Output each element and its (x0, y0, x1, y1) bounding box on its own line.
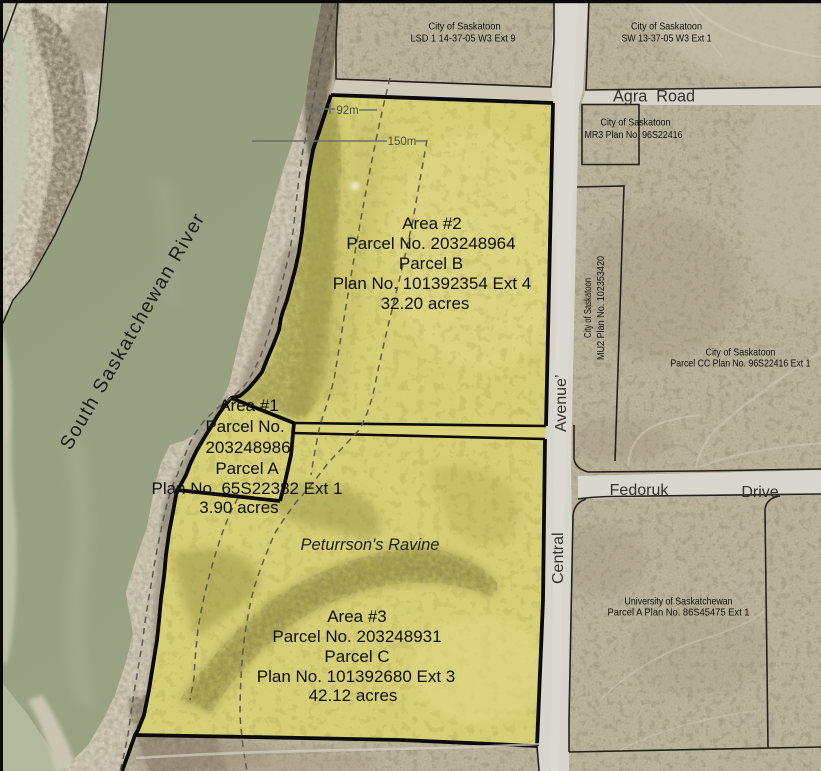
svg-text:Area #3: Area #3 (327, 607, 387, 626)
svg-text:Parcel A Plan No. 86S45475 Ext: Parcel A Plan No. 86S45475 Ext 1 (608, 607, 750, 619)
svg-text:Parcel A: Parcel A (215, 459, 279, 478)
svg-text:Area #2: Area #2 (402, 214, 462, 233)
svg-text:Parcel No. 203248964: Parcel No. 203248964 (346, 234, 515, 253)
svg-text:92m: 92m (336, 105, 358, 117)
svg-text:3.90 acres: 3.90 acres (199, 498, 278, 517)
svg-text:Fedoruk: Fedoruk (610, 482, 670, 499)
svg-text:Avenue’: Avenue’ (553, 374, 570, 432)
svg-text:Parcel No. 203248931: Parcel No. 203248931 (272, 627, 441, 646)
svg-text:City of Saskatoon: City of Saskatoon (582, 278, 594, 338)
svg-text:Parcel No.: Parcel No. (205, 417, 284, 436)
svg-text:Central: Central (550, 532, 567, 584)
svg-text:203248986: 203248986 (205, 438, 290, 457)
svg-text:LSD 1 14-37-05 W3 Ext 9: LSD 1 14-37-05 W3 Ext 9 (411, 33, 516, 45)
svg-text:Plan No. 101392680 Ext 3: Plan No. 101392680 Ext 3 (257, 667, 455, 686)
svg-text:Parcel CC Plan No. 96S22416 Ex: Parcel CC Plan No. 96S22416 Ext 1 (671, 358, 811, 370)
svg-text:32.20 acres: 32.20 acres (381, 294, 470, 313)
svg-text:Area #1: Area #1 (219, 396, 279, 415)
svg-text:Plan No. 101392354 Ext 4: Plan No. 101392354 Ext 4 (333, 274, 531, 293)
svg-text:Plan No. 65S22382 Ext 1: Plan No. 65S22382 Ext 1 (152, 479, 343, 498)
svg-text:City of Saskatoon: City of Saskatoon (429, 21, 501, 33)
svg-text:City of Saskatoon: City of Saskatoon (631, 21, 702, 33)
svg-text:42.12 acres: 42.12 acres (309, 686, 398, 705)
svg-text:MR3 Plan No. 96S22416: MR3 Plan No. 96S22416 (585, 129, 683, 141)
svg-text:Drive: Drive (741, 484, 778, 501)
svg-text:Peturrson's Ravine: Peturrson's Ravine (301, 536, 440, 554)
svg-text:Parcel C: Parcel C (324, 647, 389, 666)
svg-text:SW 13-37-05 W3 Ext 1: SW 13-37-05 W3 Ext 1 (622, 33, 712, 45)
svg-text:Parcel B: Parcel B (399, 254, 463, 273)
svg-text:Agra Road: Agra Road (613, 87, 695, 106)
svg-text:150m: 150m (388, 136, 417, 148)
svg-text:MU2 Plan No. 102353420: MU2 Plan No. 102353420 (595, 256, 607, 360)
svg-text:City of Saskatoon: City of Saskatoon (601, 117, 671, 129)
